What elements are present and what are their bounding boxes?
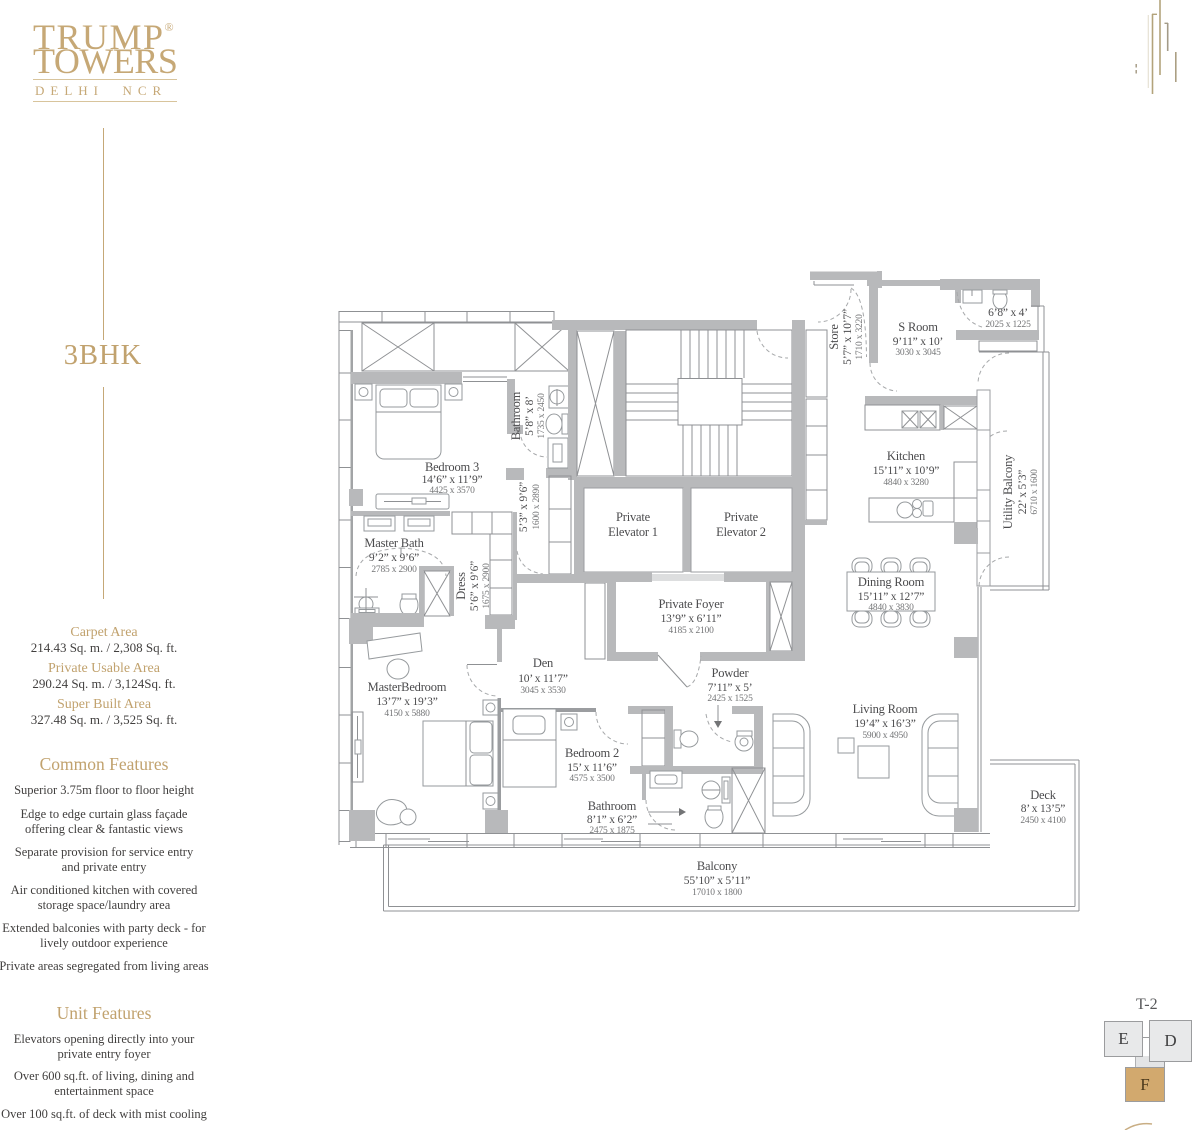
svg-text:15’11” x 12’7”: 15’11” x 12’7” <box>858 591 924 603</box>
svg-text:3030 x 3045: 3030 x 3045 <box>895 348 941 358</box>
svg-text:9’2” x 9’6”: 9’2” x 9’6” <box>369 552 419 564</box>
svg-text:7’11” x 5’: 7’11” x 5’ <box>708 682 753 694</box>
svg-text:19’4” x 16’3”: 19’4” x 16’3” <box>854 718 915 730</box>
svg-text:15’11” x 10’9”: 15’11” x 10’9” <box>873 465 939 477</box>
svg-text:5’6” x 9’6”: 5’6” x 9’6” <box>469 561 481 611</box>
svg-text:Elevator 2: Elevator 2 <box>716 525 766 539</box>
svg-text:Dress: Dress <box>454 572 468 600</box>
svg-text:1735 x 2450: 1735 x 2450 <box>537 393 547 439</box>
svg-text:Powder: Powder <box>712 666 750 680</box>
svg-text:MasterBedroom: MasterBedroom <box>368 680 447 694</box>
svg-text:5’7” x 10’7”: 5’7” x 10’7” <box>842 309 854 365</box>
svg-text:2025 x 1225: 2025 x 1225 <box>985 320 1031 330</box>
svg-text:Bedroom 2: Bedroom 2 <box>565 746 619 760</box>
svg-text:13’7” x 19’3”: 13’7” x 19’3” <box>376 696 437 708</box>
svg-text:8’ x 13’5”: 8’ x 13’5” <box>1021 803 1066 815</box>
svg-text:1600 x 2890: 1600 x 2890 <box>532 484 542 530</box>
svg-text:Utility Balcony: Utility Balcony <box>1001 454 1015 529</box>
svg-text:6’8” x 4’: 6’8” x 4’ <box>988 307 1028 319</box>
svg-text:5’8” x 8’: 5’8” x 8’ <box>524 396 536 436</box>
svg-text:9’11” x 10’: 9’11” x 10’ <box>893 336 943 348</box>
svg-text:Kitchen: Kitchen <box>887 449 926 463</box>
svg-text:Elevator 1: Elevator 1 <box>608 525 658 539</box>
svg-text:4840 x 3280: 4840 x 3280 <box>883 478 929 488</box>
svg-text:8’1” x 6’2”: 8’1” x 6’2” <box>587 814 637 826</box>
svg-text:S Room: S Room <box>898 320 938 334</box>
svg-text:4150 x 5880: 4150 x 5880 <box>384 709 430 719</box>
svg-text:Living Room: Living Room <box>853 702 918 716</box>
svg-text:Private: Private <box>616 510 651 524</box>
svg-text:6710 x 1600: 6710 x 1600 <box>1030 469 1040 515</box>
svg-text:1710 x 3220: 1710 x 3220 <box>855 314 865 360</box>
svg-text:2785 x 2900: 2785 x 2900 <box>371 565 417 575</box>
svg-text:Private Foyer: Private Foyer <box>658 597 724 611</box>
svg-text:3045 x 3530: 3045 x 3530 <box>520 686 566 696</box>
svg-text:Dining Room: Dining Room <box>858 575 925 589</box>
svg-text:55’10” x 5’11”: 55’10” x 5’11” <box>684 875 750 887</box>
svg-text:Private: Private <box>724 510 759 524</box>
svg-text:2450 x 4100: 2450 x 4100 <box>1020 816 1066 826</box>
svg-text:5’3” x 9’6”: 5’3” x 9’6” <box>518 482 530 532</box>
svg-text:1675 x 2900: 1675 x 2900 <box>482 563 492 609</box>
svg-text:Master Bath: Master Bath <box>364 536 424 550</box>
svg-text:Bathroom: Bathroom <box>509 391 523 440</box>
svg-text:22’ x 5’3”: 22’ x 5’3” <box>1017 470 1029 515</box>
svg-text:Store: Store <box>827 324 841 350</box>
svg-text:Bedroom 3: Bedroom 3 <box>425 460 479 474</box>
svg-text:4185 x 2100: 4185 x 2100 <box>668 626 714 636</box>
svg-text:5900 x 4950: 5900 x 4950 <box>862 731 908 741</box>
svg-text:13’9” x 6’11”: 13’9” x 6’11” <box>661 613 722 625</box>
svg-text:15’ x 11’6”: 15’ x 11’6” <box>567 762 617 774</box>
svg-text:17010 x 1800: 17010 x 1800 <box>692 888 742 898</box>
svg-text:10’ x 11’7”: 10’ x 11’7” <box>518 673 568 685</box>
svg-text:4575 x 3500: 4575 x 3500 <box>569 774 615 784</box>
svg-text:2475 x 1875: 2475 x 1875 <box>589 826 635 836</box>
svg-text:Deck: Deck <box>1030 788 1057 802</box>
svg-text:2425 x 1525: 2425 x 1525 <box>707 694 753 704</box>
svg-text:Balcony: Balcony <box>697 859 738 873</box>
svg-text:Bathroom: Bathroom <box>588 799 637 813</box>
svg-text:14’6” x 11’9”: 14’6” x 11’9” <box>422 474 483 486</box>
svg-text:Den: Den <box>533 656 554 670</box>
